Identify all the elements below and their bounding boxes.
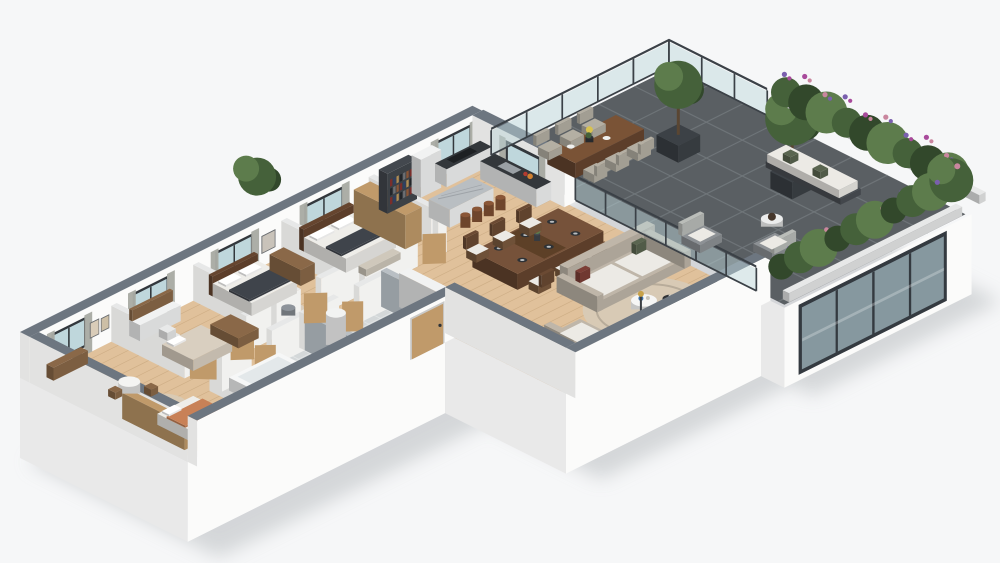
isometric-floorplan-scene	[0, 0, 1000, 563]
floorplan-3d-render	[0, 0, 1000, 563]
